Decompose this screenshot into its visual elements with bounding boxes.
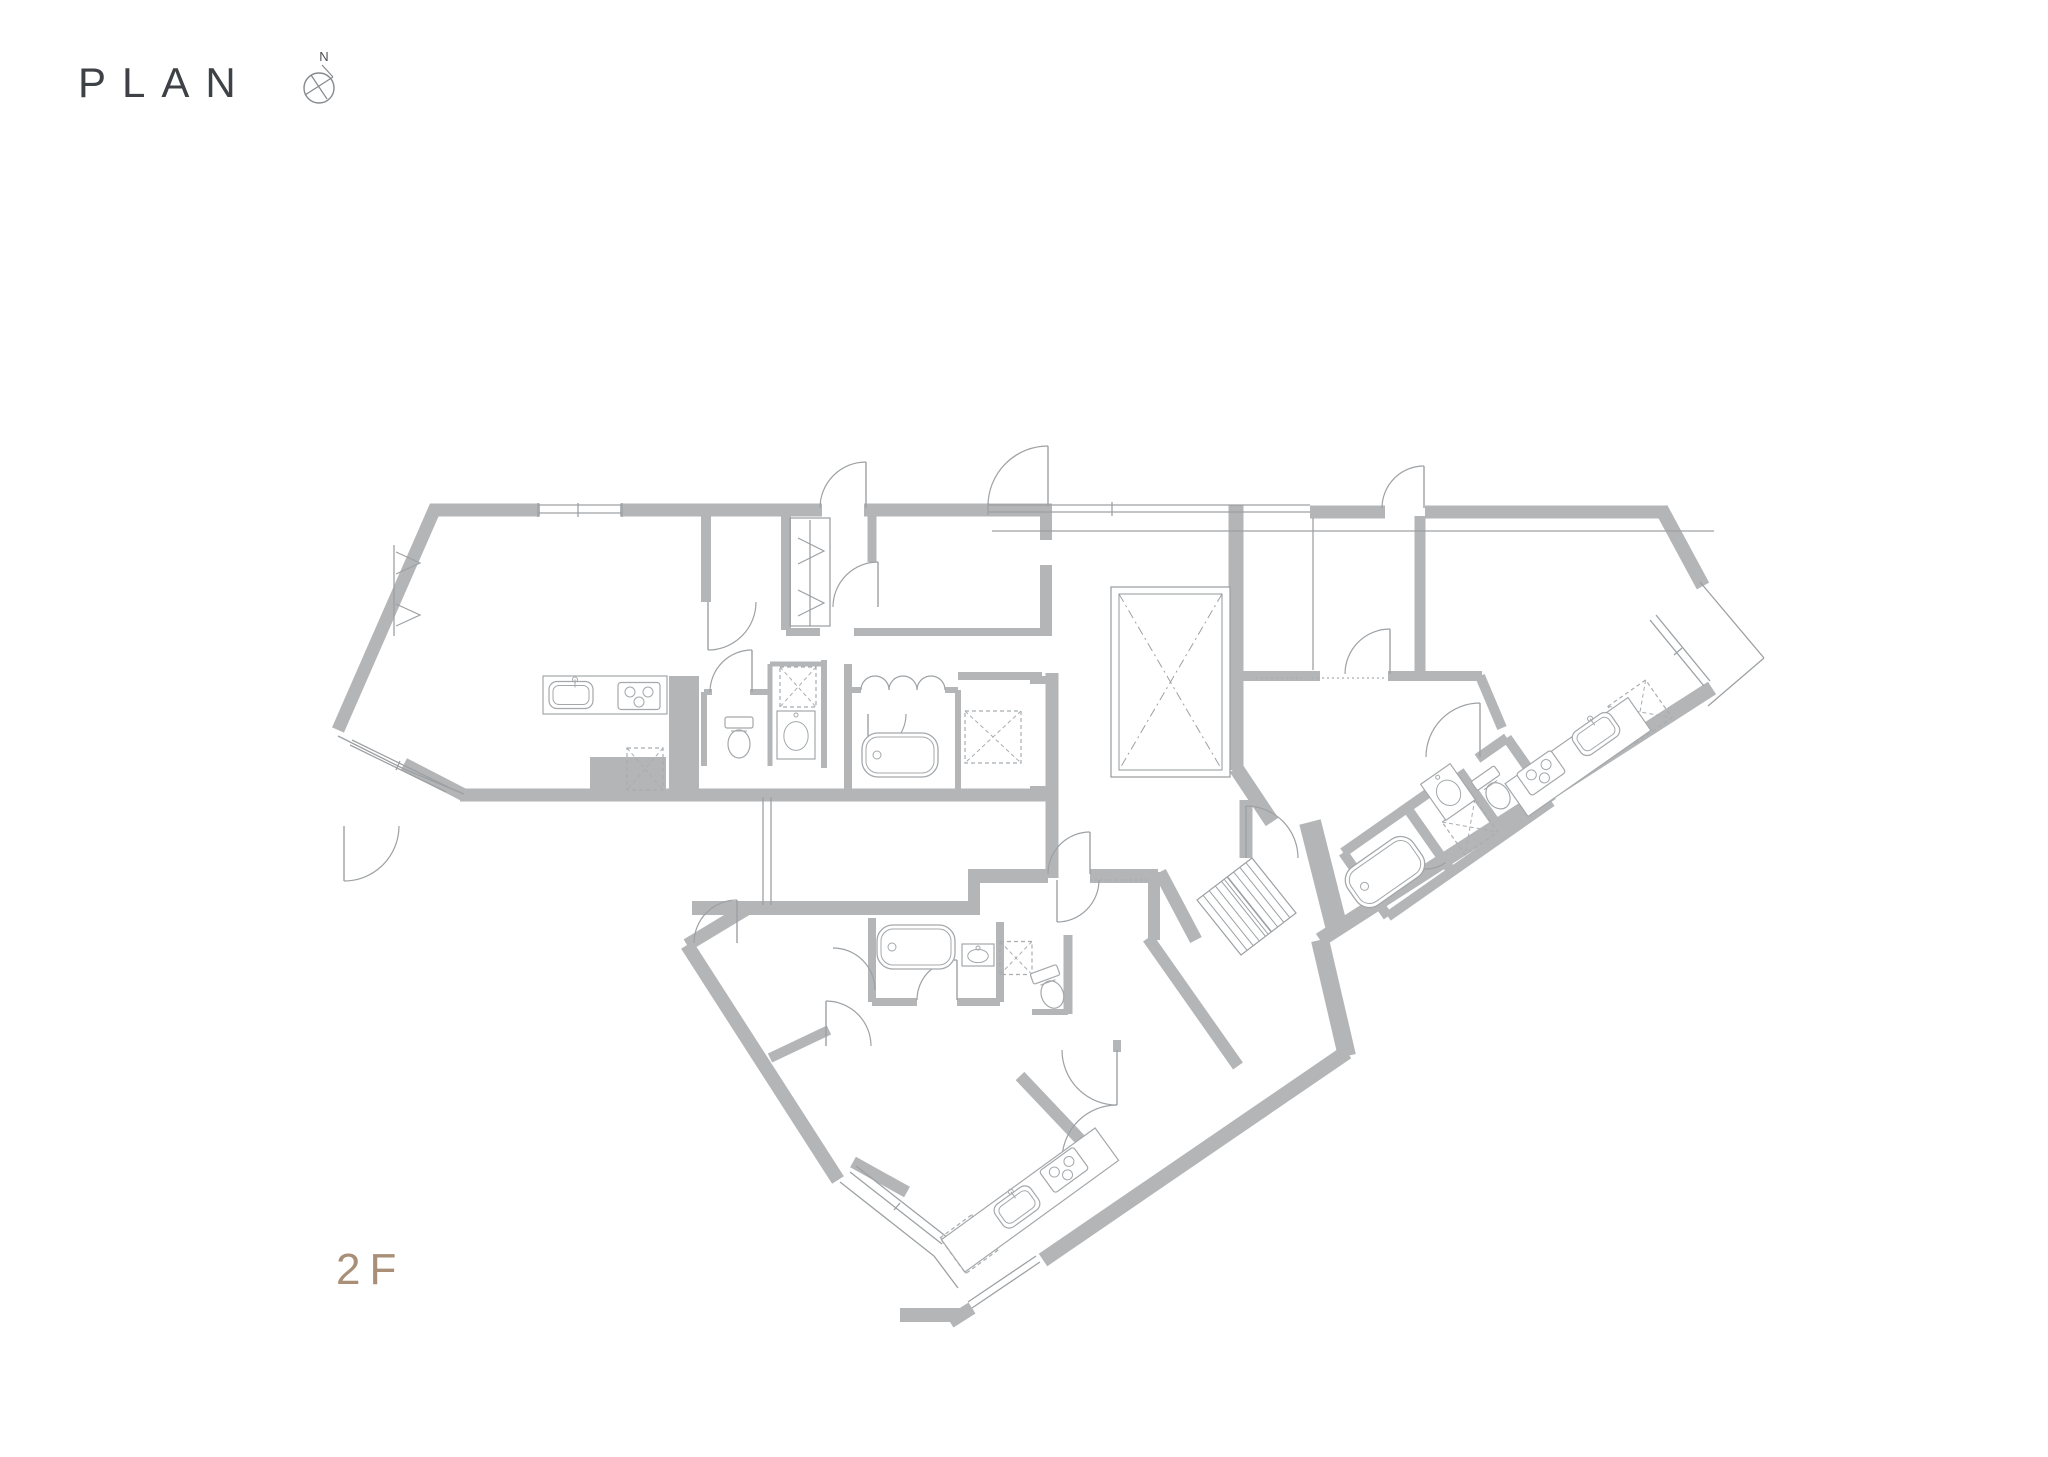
- washer-box-icon: [965, 711, 1021, 763]
- floor-label: 2F: [336, 1248, 405, 1292]
- elevator-layer: [1111, 587, 1230, 777]
- door-arc: [826, 1001, 871, 1046]
- compass-icon: N: [294, 48, 346, 112]
- door-arc: [708, 602, 756, 650]
- vanity-icon: [962, 944, 994, 966]
- page-title: PLAN: [78, 48, 252, 104]
- vanity-icon: [777, 711, 815, 759]
- door-arc: [1426, 703, 1480, 757]
- floor-plan-drawing: [0, 0, 2048, 1457]
- vanity-icon: [1421, 764, 1476, 821]
- washer-box-icon: [780, 667, 816, 707]
- compass-north-label: N: [319, 49, 328, 64]
- plan-header: PLAN N: [78, 48, 346, 112]
- door-arc: [1345, 629, 1390, 674]
- washer-box-icon: [1000, 942, 1032, 975]
- door-arc: [833, 562, 878, 607]
- door-arc: [344, 826, 399, 881]
- door-arc: [1382, 466, 1424, 508]
- bathtub-icon: [877, 925, 955, 969]
- counter-icon: [1505, 698, 1651, 817]
- toilet-icon: [725, 717, 753, 758]
- bathtub-icon: [862, 733, 938, 777]
- stove-icon: [618, 683, 660, 710]
- door-arc: [710, 650, 752, 692]
- door-arc: [1062, 1050, 1117, 1105]
- door-arc: [988, 446, 1048, 506]
- staircase-layer: [1197, 858, 1296, 955]
- ksink-icon: [549, 677, 593, 709]
- door-arc: [1057, 880, 1099, 922]
- floor-plan-page: PLAN N 2F: [0, 0, 2048, 1457]
- door-arc: [820, 462, 866, 508]
- doors-layer: [344, 446, 1480, 1160]
